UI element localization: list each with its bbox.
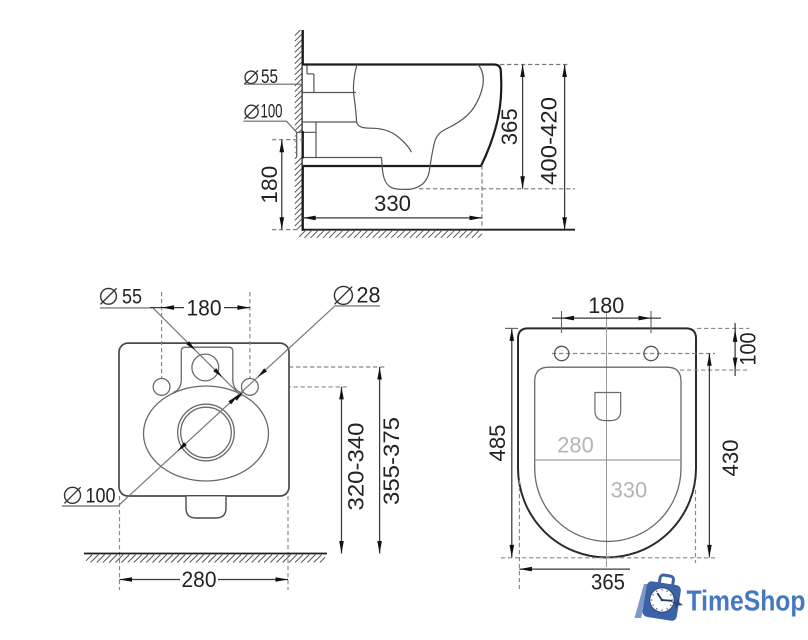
- svg-text:100: 100: [261, 101, 283, 122]
- svg-text:400-420: 400-420: [537, 97, 562, 185]
- svg-text:180: 180: [187, 295, 222, 320]
- svg-text:330: 330: [611, 477, 648, 502]
- svg-text:280: 280: [557, 432, 594, 457]
- svg-text:280: 280: [182, 567, 217, 592]
- svg-text:28: 28: [357, 282, 381, 307]
- svg-text:430: 430: [718, 440, 743, 477]
- svg-text:180: 180: [588, 293, 624, 318]
- svg-text:55: 55: [261, 67, 278, 88]
- svg-text:365: 365: [591, 570, 625, 595]
- svg-text:365: 365: [497, 108, 522, 145]
- svg-text:485: 485: [485, 425, 510, 462]
- svg-text:180: 180: [257, 166, 282, 204]
- svg-text:320-340: 320-340: [344, 423, 369, 511]
- svg-text:100: 100: [86, 484, 116, 507]
- svg-text:TimeShop: TimeShop: [687, 586, 806, 618]
- svg-text:355-375: 355-375: [379, 417, 404, 505]
- svg-text:330: 330: [374, 191, 411, 216]
- svg-text:55: 55: [122, 285, 142, 308]
- svg-text:100: 100: [736, 333, 761, 366]
